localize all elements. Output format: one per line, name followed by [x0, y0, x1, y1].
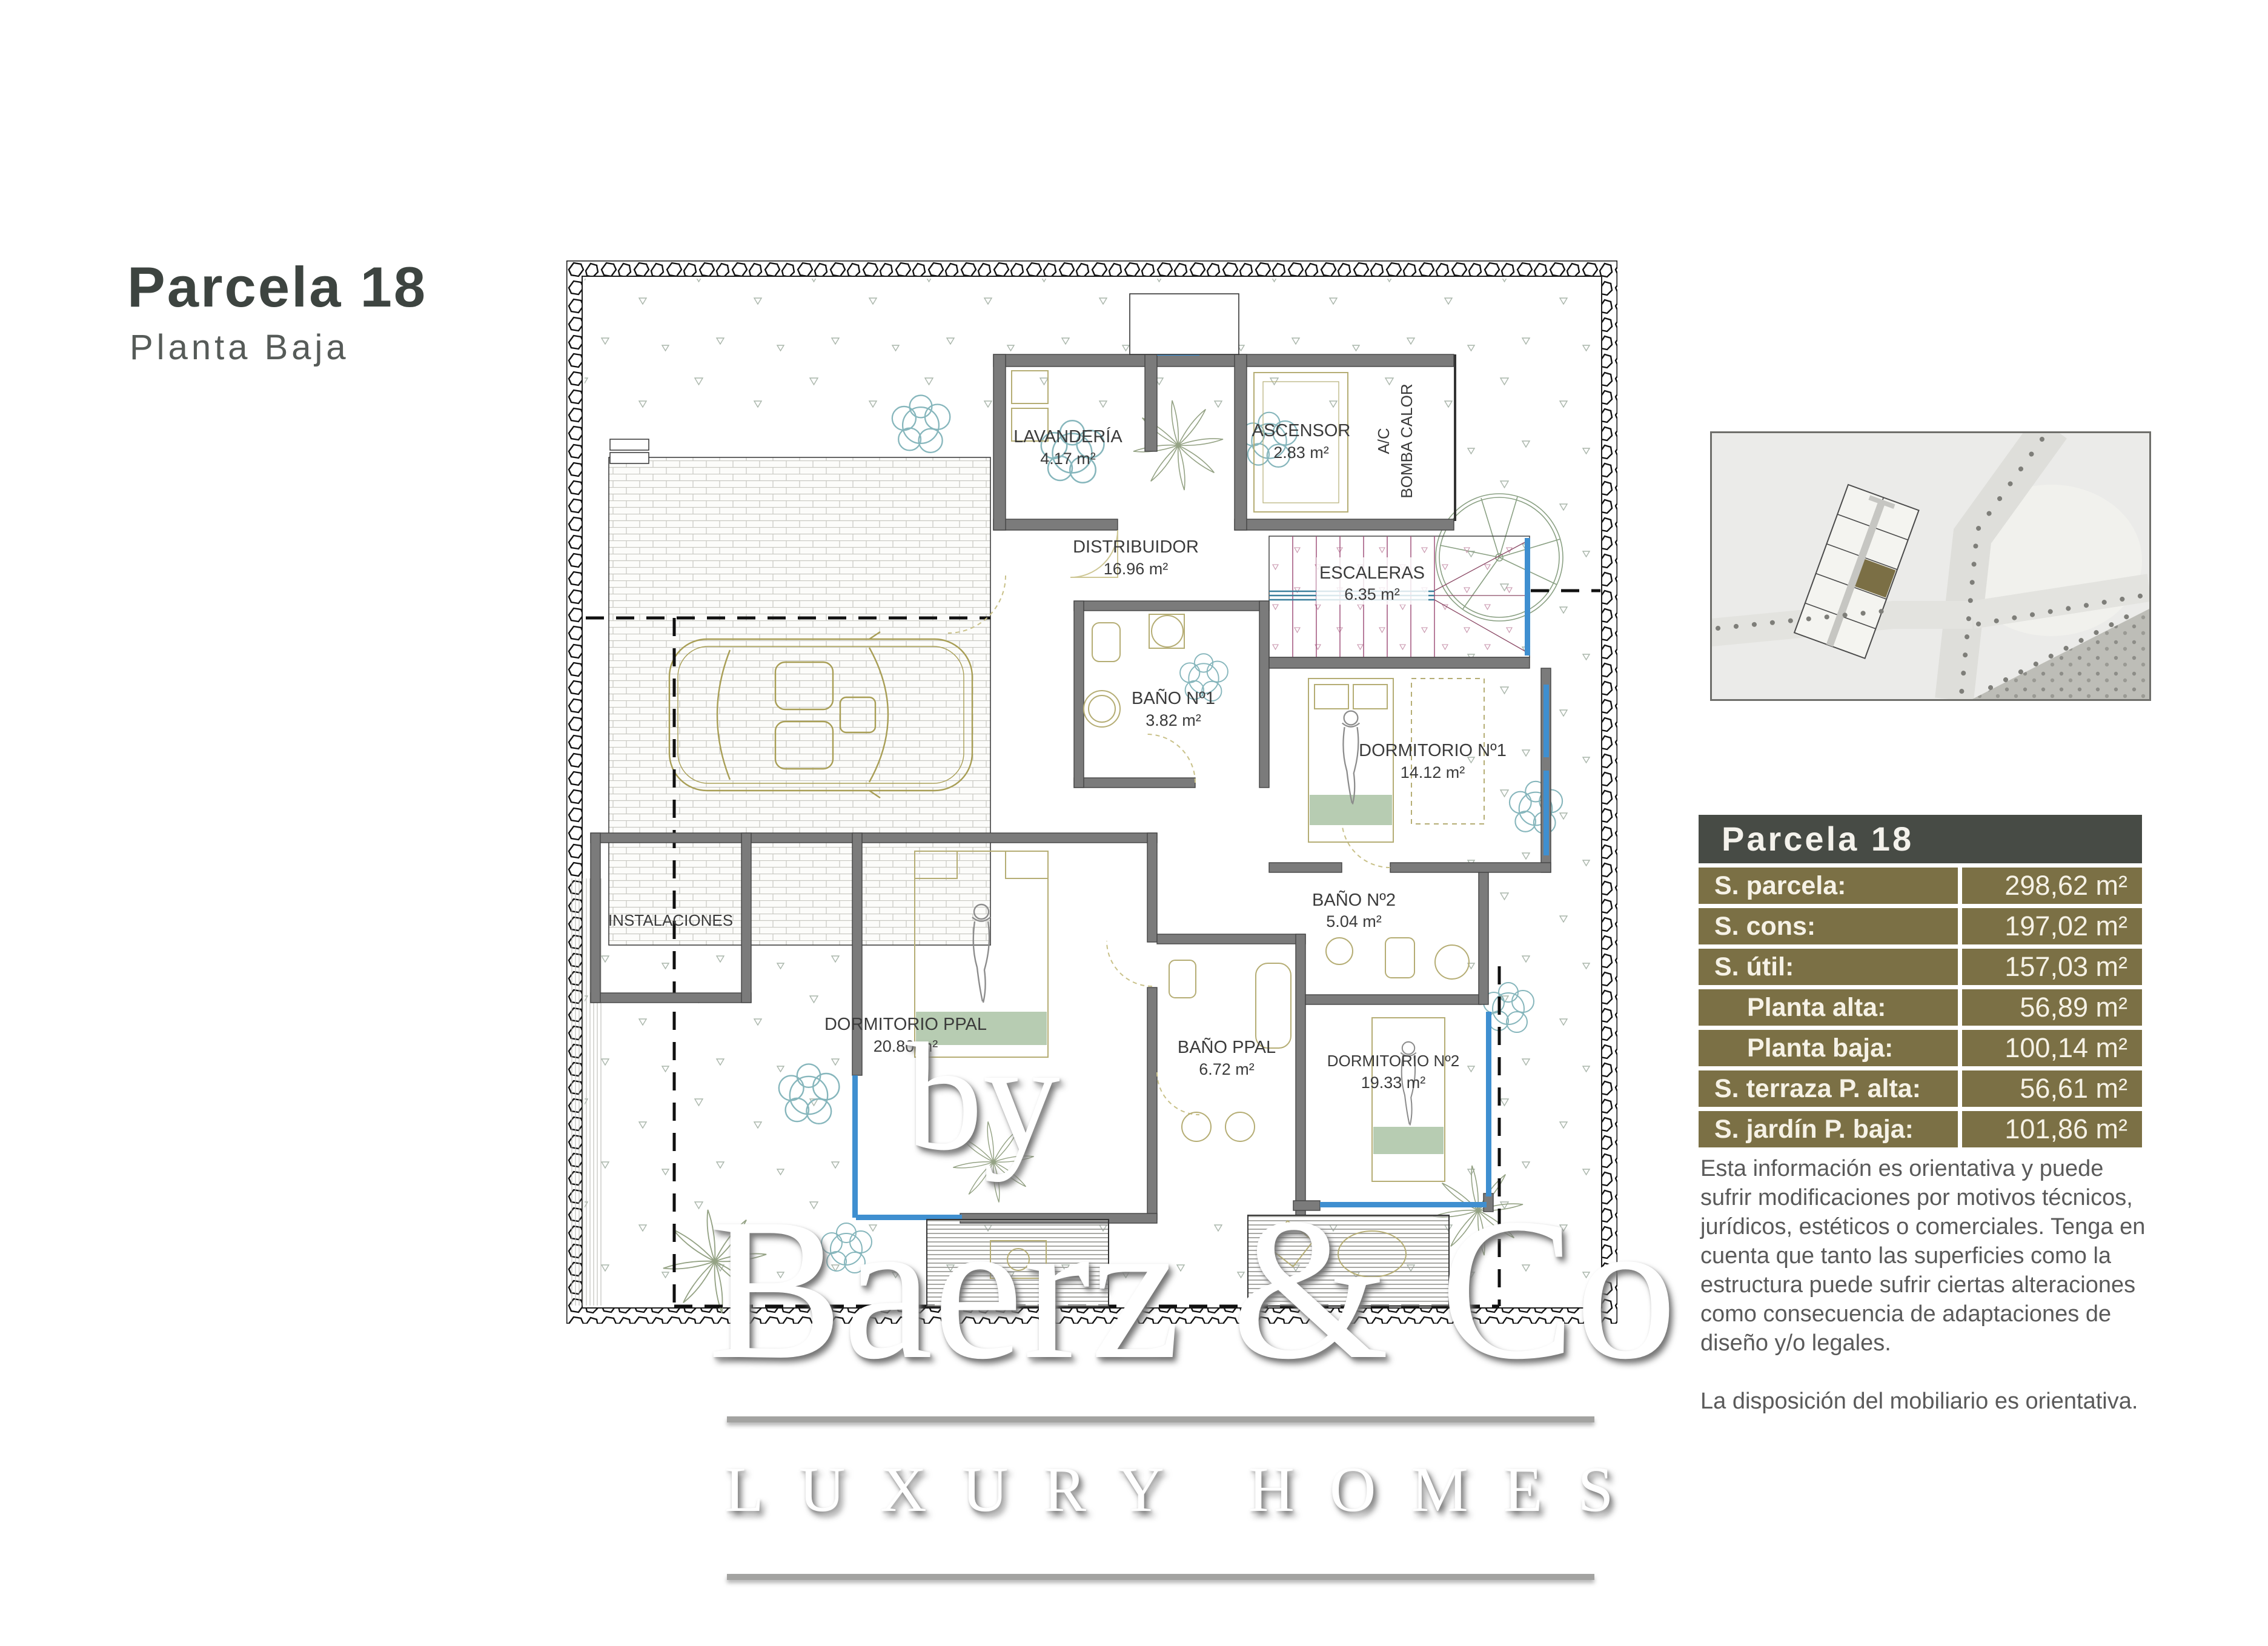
- site-map: [1710, 431, 2151, 701]
- row-label: Planta alta:: [1699, 989, 1958, 1026]
- table-row: Planta alta: 56,89 m²: [1699, 989, 2142, 1026]
- disclaimer-paragraph-1: Esta información es orientativa y puede …: [1700, 1154, 2154, 1358]
- room-label-banoppal: BAÑO PPAL: [1178, 1037, 1276, 1057]
- room-area-distribuidor: 16.96 m²: [1104, 560, 1169, 578]
- room-label-ac-2: BOMBA CALOR: [1398, 383, 1416, 498]
- room-area-ascensor: 2.83 m²: [1273, 443, 1329, 462]
- row-value: 101,86 m²: [1962, 1111, 2142, 1147]
- table-row: Planta baja: 100,14 m²: [1699, 1030, 2142, 1066]
- page: Parcela 18 Planta Baja: [0, 0, 2268, 1646]
- row-value: 298,62 m²: [1962, 868, 2142, 904]
- watermark-rule-top: [727, 1416, 1594, 1422]
- row-value: 197,02 m²: [1962, 908, 2142, 944]
- disclaimer-paragraph-2: La disposición del mobiliario es orienta…: [1700, 1387, 2154, 1416]
- watermark-tagline: LUXURY HOMES: [724, 1453, 1648, 1527]
- row-label: S. parcela:: [1699, 868, 1958, 904]
- table-row: S. terraza P. alta: 56,61 m²: [1699, 1070, 2142, 1107]
- page-subtitle: Planta Baja: [130, 327, 350, 368]
- table-row: S. parcela: 298,62 m²: [1699, 868, 2142, 904]
- page-title: Parcela 18: [127, 254, 427, 320]
- table-row: S. cons: 197,02 m²: [1699, 908, 2142, 944]
- room-area-escaleras: 6.35 m²: [1344, 585, 1400, 603]
- room-area-dormppal: 20.80 m²: [874, 1037, 938, 1055]
- watermark-rule-bottom: [727, 1574, 1594, 1580]
- room-label-bano1: BAÑO Nº1: [1132, 688, 1215, 708]
- room-label-bano2: BAÑO Nº2: [1312, 889, 1396, 910]
- room-label-ascensor: ASCENSOR: [1252, 421, 1351, 440]
- entrance-porch: [1130, 294, 1239, 354]
- garage-driveway: [609, 439, 990, 945]
- summary-table-header: Parcela 18: [1699, 815, 2142, 863]
- table-row: S. útil: 157,03 m²: [1699, 949, 2142, 985]
- row-label: S. útil:: [1699, 949, 1958, 985]
- row-label: S. cons:: [1699, 908, 1958, 944]
- row-value: 56,89 m²: [1962, 989, 2142, 1026]
- row-label: S. jardín P. baja:: [1699, 1111, 1958, 1147]
- summary-table: Parcela 18 S. parcela: 298,62 m² S. cons…: [1699, 815, 2142, 1147]
- room-label-escaleras: ESCALERAS: [1319, 563, 1425, 583]
- row-label: Planta baja:: [1699, 1030, 1958, 1066]
- row-value: 56,61 m²: [1962, 1070, 2142, 1107]
- table-row: S. jardín P. baja: 101,86 m²: [1699, 1111, 2142, 1147]
- room-label-distribuidor: DISTRIBUIDOR: [1073, 537, 1199, 557]
- room-area-banoppal: 6.72 m²: [1199, 1060, 1255, 1078]
- room-area-bano1: 3.82 m²: [1146, 711, 1201, 729]
- room-label-dormitorio2: DORMITORIO Nº2: [1327, 1052, 1459, 1070]
- room-label-lavanderia: LAVANDERÍA: [1013, 426, 1122, 446]
- floor-plan: LAVANDERÍA 4.17 m² ASCENSOR 2.83 m² A/C …: [566, 261, 1617, 1327]
- room-label-ac: A/C: [1374, 428, 1393, 454]
- room-area-lavanderia: 4.17 m²: [1040, 450, 1096, 468]
- room-label-instalaciones: INSTALACIONES: [608, 911, 733, 929]
- disclaimer: Esta información es orientativa y puede …: [1700, 1154, 2154, 1445]
- room-label-dormppal: DORMITORIO PPAL: [824, 1015, 987, 1034]
- room-area-dormitorio1: 14.12 m²: [1401, 763, 1465, 782]
- row-value: 100,14 m²: [1962, 1030, 2142, 1066]
- row-label: S. terraza P. alta:: [1699, 1070, 1958, 1107]
- room-area-dormitorio2: 19.33 m²: [1361, 1074, 1426, 1092]
- room-area-bano2: 5.04 m²: [1326, 912, 1382, 931]
- row-value: 157,03 m²: [1962, 949, 2142, 985]
- room-label-dormitorio1: DORMITORIO Nº1: [1359, 741, 1507, 760]
